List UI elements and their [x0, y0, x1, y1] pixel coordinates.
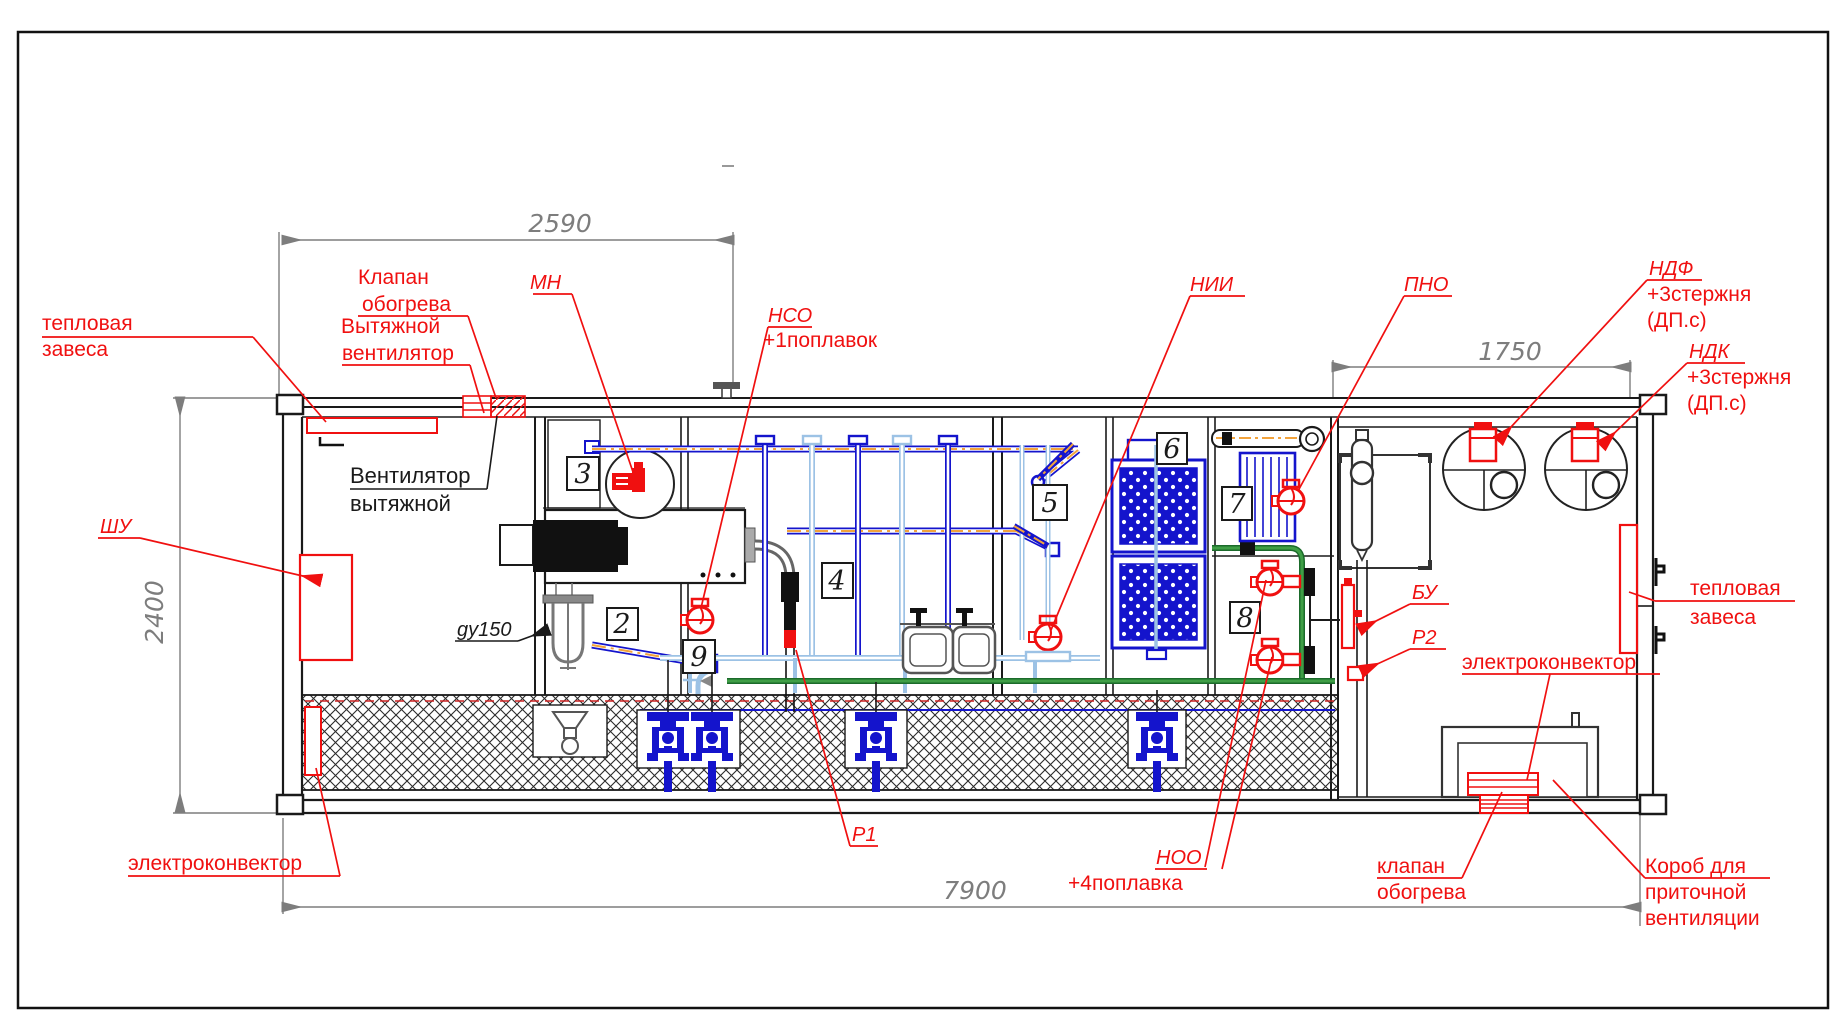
valve-r2 [1348, 667, 1363, 680]
tag-ndk: НДК [1689, 341, 1731, 363]
label-exhaust-fan-red-1: Вытяжной [341, 315, 440, 338]
vestibule [300, 418, 437, 660]
pos-3: 3 [574, 459, 591, 490]
tag-bu: БУ [1412, 582, 1439, 604]
dosing-tank-ndf [1443, 422, 1525, 510]
label-exhaust-fan-black-2: вытяжной [350, 491, 451, 516]
right-section [1340, 422, 1664, 813]
label-exhaust-fan-black-1: Вентилятор [350, 463, 470, 488]
roof-heating-valve [463, 396, 525, 417]
pos-8: 8 [1236, 603, 1253, 634]
tank6 [1112, 440, 1205, 659]
container-layout-drawing: 2590 1750 2400 7900 [0, 0, 1847, 1035]
label-heat-curtain-left-2: завеса [42, 338, 108, 361]
tag-pno: ПНО [1404, 274, 1449, 296]
control-unit-bu [1342, 578, 1362, 648]
label-heat-curtain-left-1: тепловая [42, 312, 133, 335]
door-handle-top [1656, 558, 1664, 586]
label-electroconvector-right: электроконвектор [1462, 651, 1636, 674]
label-duct-2: приточной [1645, 881, 1746, 904]
door-handle-bottom [1656, 626, 1664, 654]
label-heat-valve-low-1: клапан [1377, 855, 1445, 878]
area8-pumps [1251, 561, 1340, 674]
tag-shu: ШУ [100, 516, 133, 538]
pos-6: 6 [1163, 434, 1180, 465]
pos-4: 4 [827, 566, 845, 597]
tag-nso-note: +1поплавок [763, 329, 878, 352]
dosing-tank-ndk [1545, 422, 1627, 510]
control-cabinet-shu [300, 555, 352, 660]
pump-mn [606, 450, 674, 518]
tag-nso: НСО [768, 305, 812, 327]
tag-r1: Р1 [852, 824, 876, 846]
heat-curtain-right-unit [1620, 525, 1637, 653]
electroconvector-left-unit [305, 707, 321, 775]
roof-vent-pipe [713, 382, 740, 398]
tag-noo-note: +4поплавка [1068, 872, 1183, 895]
floor-trench [302, 695, 1338, 792]
tag-ndf: НДФ [1649, 258, 1694, 280]
pos-2: 2 [612, 609, 630, 640]
tag-ndf-note-2: (ДП.с) [1647, 309, 1707, 332]
tag-ndk-note-1: +3стержня [1687, 366, 1791, 389]
dim-length: 7900 [943, 876, 1007, 905]
label-duct-3: вентиляции [1645, 907, 1760, 930]
tag-gy150: gy150 [457, 619, 512, 641]
dim-top-width: 2590 [528, 209, 592, 238]
tag-r2: Р2 [1412, 627, 1436, 649]
gy150-pipe [543, 583, 593, 670]
label-heat-valve-1: Клапан [358, 266, 429, 289]
label-electroconvector-left: электроконвектор [128, 852, 302, 875]
pos-5: 5 [1041, 488, 1058, 519]
tag-noo: НОО [1156, 847, 1202, 869]
area5-equipment [1014, 444, 1073, 661]
tag-nii: НИИ [1190, 274, 1234, 296]
pump-nso [681, 599, 713, 633]
tag-ndf-note-1: +3стержня [1647, 283, 1751, 306]
heat-curtain-left-unit [307, 418, 437, 433]
label-exhaust-fan-red-2: вентилятор [342, 342, 454, 365]
pos-9: 9 [690, 642, 707, 673]
pos-7: 7 [1228, 489, 1246, 520]
tag-ndk-note-2: (ДП.с) [1687, 392, 1747, 415]
drawing-sheet: 2590 1750 2400 7900 [0, 0, 1847, 1035]
dim-right-width: 1750 [1478, 337, 1542, 366]
label-duct-1: Короб для [1645, 855, 1746, 878]
label-heat-valve-low-2: обогрева [1377, 881, 1466, 904]
label-heat-valve-2: обогрева [362, 293, 451, 316]
dim-height: 2400 [140, 580, 169, 644]
label-heat-curtain-right-1: тепловая [1690, 577, 1781, 600]
label-heat-curtain-right-2: завеса [1690, 606, 1756, 629]
supply-vent-unit [1442, 713, 1598, 813]
area7-equipment [1212, 427, 1324, 541]
tag-mn: МН [530, 272, 562, 294]
